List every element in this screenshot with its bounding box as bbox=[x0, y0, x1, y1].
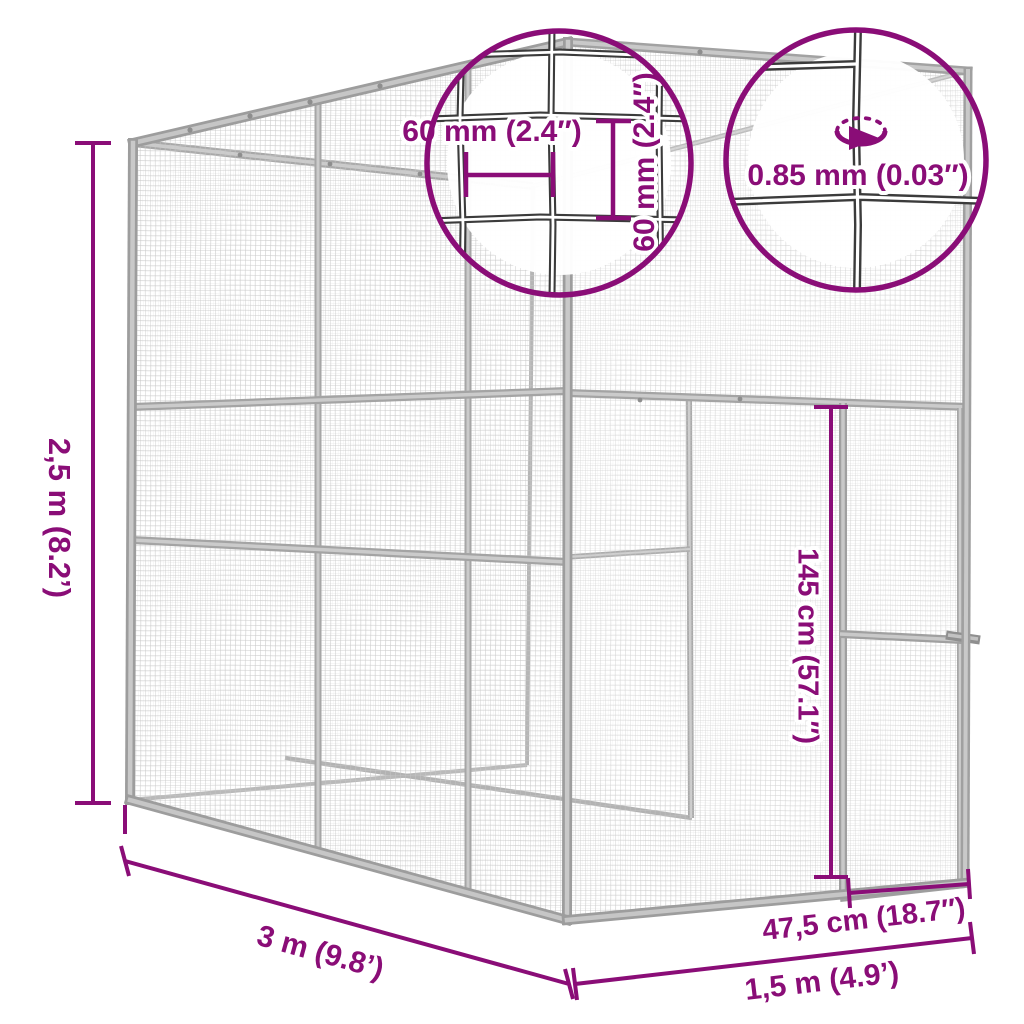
wire-detail-circle: 0.85 mm (0.03″) bbox=[726, 29, 987, 291]
cat-cage-dimension-diagram: 60 mm (2.4″) 60 mm (2.4″) 0.85 mm (0.03″… bbox=[0, 0, 1024, 1024]
wire-thickness-label: 0.85 mm (0.03″) bbox=[747, 159, 968, 192]
height-dimension-line bbox=[75, 143, 125, 834]
height-dimension-label: 2,5 m (8.2’) bbox=[42, 438, 77, 598]
diagram-canvas: 60 mm (2.4″) 60 mm (2.4″) 0.85 mm (0.03″… bbox=[0, 0, 1024, 1024]
mesh-height-label: 60 mm (2.4″) bbox=[628, 72, 661, 251]
door-height-dimension-label: 145 cm (57.1″) bbox=[791, 548, 823, 744]
